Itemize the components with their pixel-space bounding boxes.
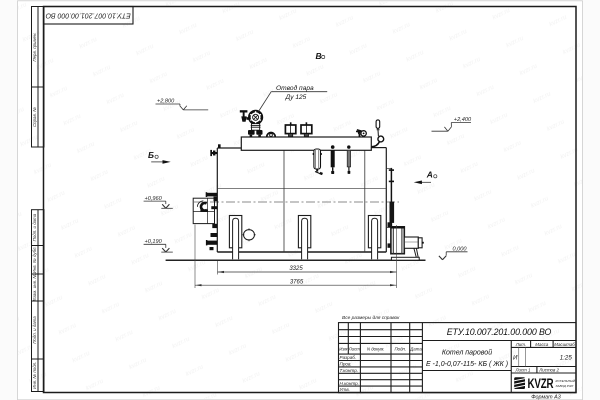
svg-text:ЗАВОД РЭП: ЗАВОД РЭП xyxy=(556,384,575,388)
svg-text:Подп.: Подп. xyxy=(394,347,406,352)
svg-text:Перв. примен.: Перв. примен. xyxy=(32,32,37,61)
svg-text:+0,190: +0,190 xyxy=(145,239,163,245)
svg-text:Е -1,0-0,07-115- КБ ( ЖК ): Е -1,0-0,07-115- КБ ( ЖК ) xyxy=(426,361,508,368)
svg-text:KVZR: KVZR xyxy=(528,375,554,391)
svg-text:Формат А3: Формат А3 xyxy=(531,394,561,400)
svg-text:Масса: Масса xyxy=(535,342,549,347)
svg-text:Т.контр.: Т.контр. xyxy=(340,368,359,373)
svg-text:Б: Б xyxy=(148,150,154,160)
svg-text:Н.контр.: Н.контр. xyxy=(340,381,359,386)
svg-text:Взам. инв. №: Взам. инв. № xyxy=(32,274,37,301)
svg-text:+2,800: +2,800 xyxy=(157,99,175,105)
svg-text:Пров.: Пров. xyxy=(340,362,352,367)
svg-text:Утв.: Утв. xyxy=(340,387,350,392)
svg-text:Подп. и дата: Подп. и дата xyxy=(32,316,37,344)
svg-text:Инв. № дубл.: Инв. № дубл. xyxy=(32,246,37,273)
svg-text:3325: 3325 xyxy=(289,266,303,272)
svg-text:Лит.: Лит. xyxy=(515,342,526,347)
svg-text:Разраб.: Разраб. xyxy=(340,355,357,360)
svg-text:Подп. и дата: Подп. и дата xyxy=(32,213,37,241)
svg-text:Справ. №: Справ. № xyxy=(32,107,37,127)
svg-text:Лист 1: Лист 1 xyxy=(515,368,532,373)
svg-text:ЕТУ.10.007.201.00.000 ВО: ЕТУ.10.007.201.00.000 ВО xyxy=(447,327,552,337)
svg-text:Масштаб: Масштаб xyxy=(554,342,575,347)
svg-text:Инв. № подл.: Инв. № подл. xyxy=(32,362,37,389)
svg-text:Котел паровой: Котел паровой xyxy=(442,348,492,356)
svg-text:ЕТУ.10.007.201.00.000 ВО: ЕТУ.10.007.201.00.000 ВО xyxy=(45,11,131,18)
svg-text:Ду 125: Ду 125 xyxy=(285,94,307,101)
svg-text:+2,400: +2,400 xyxy=(454,117,472,123)
svg-text:Дата: Дата xyxy=(409,347,422,352)
svg-text:КОТЕЛЬНЫЙ: КОТЕЛЬНЫЙ xyxy=(556,379,576,383)
svg-text:В: В xyxy=(316,51,322,61)
svg-text:Все размеры для справок: Все размеры для справок xyxy=(342,315,400,321)
svg-text:И: И xyxy=(513,355,518,362)
svg-text:N докум.: N докум. xyxy=(367,347,385,352)
svg-text:+0,960: +0,960 xyxy=(145,196,163,202)
svg-text:Лист: Лист xyxy=(348,347,361,352)
svg-text:Изм: Изм xyxy=(339,347,347,352)
svg-text:А: А xyxy=(426,170,433,180)
svg-text:3765: 3765 xyxy=(290,279,304,285)
svg-text:0,000: 0,000 xyxy=(453,246,468,252)
svg-text:1:25: 1:25 xyxy=(560,355,573,362)
svg-text:Отвод пара: Отвод пара xyxy=(276,84,314,92)
svg-text:Листов 2: Листов 2 xyxy=(538,368,559,373)
